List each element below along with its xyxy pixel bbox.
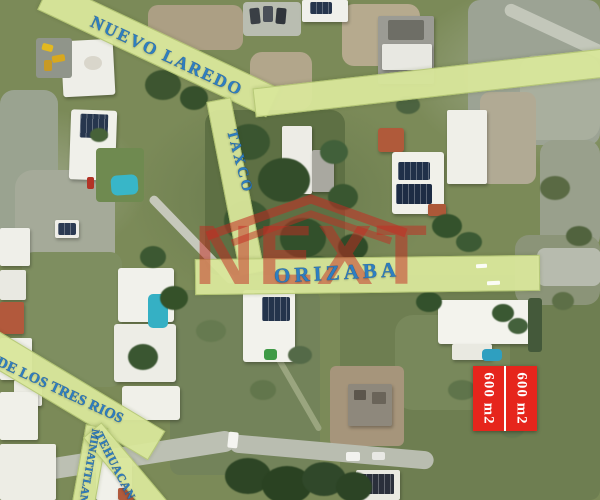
building [0, 228, 30, 266]
lot-area-label-left: 600 m2 [480, 372, 497, 424]
building [382, 44, 432, 70]
roof-opening [388, 20, 424, 40]
tree [128, 344, 158, 370]
car-white [372, 452, 385, 460]
machine [44, 60, 52, 71]
tree [258, 158, 310, 202]
lot-area-label-right: 600 m2 [513, 372, 530, 424]
bush [196, 320, 226, 342]
lot-half-right: 600 m2 [506, 366, 537, 431]
road-dash [487, 281, 500, 286]
building [0, 392, 38, 440]
building [0, 270, 26, 300]
solar-panels [310, 2, 332, 14]
roof-opening [354, 390, 366, 400]
tree [320, 140, 348, 164]
car-white [227, 432, 239, 449]
pool [482, 349, 502, 361]
solar-panels [262, 297, 290, 321]
roof-opening [372, 392, 386, 404]
tree [280, 218, 326, 258]
tree [432, 214, 462, 238]
tree [140, 246, 166, 268]
pool-green [264, 349, 277, 360]
tree [160, 286, 188, 310]
bush [552, 292, 574, 310]
tree [508, 318, 528, 334]
bush [540, 176, 570, 200]
car [275, 8, 286, 25]
car-white [346, 452, 360, 461]
road-dash [476, 264, 487, 269]
tree [416, 292, 442, 312]
bush [250, 380, 276, 400]
tree [336, 472, 372, 500]
building-warehouse [447, 110, 487, 184]
road [537, 248, 600, 286]
tree [180, 86, 208, 110]
building-terracotta [0, 302, 24, 334]
tree [90, 128, 108, 142]
lot-overlay: 600 m2 600 m2 [473, 366, 537, 431]
bush [288, 346, 312, 364]
aerial-map: NEXT NUEVO LAREDO TAXCO ORIZABA DE LOS T… [0, 0, 600, 500]
car-red [87, 177, 94, 189]
pool [110, 174, 138, 196]
car [249, 8, 261, 25]
dome-roof [84, 56, 102, 70]
hedge [528, 298, 542, 352]
car [263, 6, 273, 22]
building [0, 444, 56, 500]
bush [566, 226, 592, 246]
tree [328, 184, 358, 210]
solar-panels [396, 184, 432, 204]
tree [456, 232, 482, 252]
solar-panels [398, 162, 430, 180]
terrain-dirt [480, 92, 536, 184]
lot-half-left: 600 m2 [473, 366, 504, 431]
building-terracotta [378, 128, 404, 152]
solar-panels [58, 223, 76, 235]
bush [448, 380, 476, 400]
